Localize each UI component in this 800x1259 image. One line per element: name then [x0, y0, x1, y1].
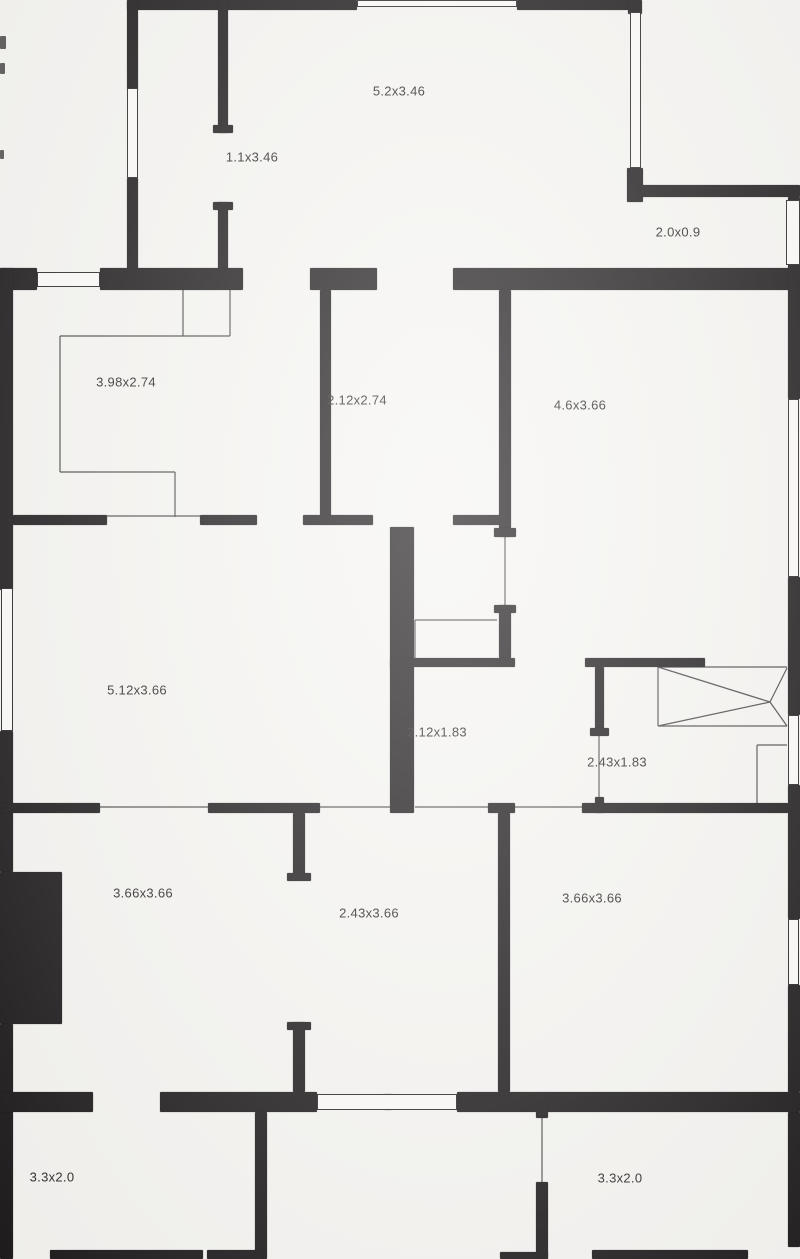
wall-segment	[127, 0, 357, 10]
wall-segment	[100, 268, 243, 290]
annotation-line	[658, 667, 770, 702]
room-dimension-label: 4.6x3.66	[554, 398, 606, 413]
window-marker	[1, 588, 13, 731]
room-dimension-label: 3.98x2.74	[96, 375, 156, 390]
wall-segment	[0, 803, 100, 813]
wall-segment	[592, 1250, 748, 1259]
wall-segment	[788, 985, 800, 1092]
wall-segment	[200, 515, 257, 525]
wall-segment	[788, 1112, 800, 1247]
room-dimension-label: 3.66x3.66	[562, 891, 622, 906]
wall-segment	[536, 1108, 548, 1118]
window-marker	[788, 715, 799, 785]
room-dimension-label: 2.43x1.83	[587, 755, 647, 770]
wall-segment	[293, 813, 305, 880]
wall-segment	[457, 1092, 800, 1112]
room-dimension-label: 2.12x2.74	[327, 393, 387, 408]
wall-segment	[499, 605, 511, 658]
wall-segment	[127, 0, 138, 90]
wall-segment	[0, 731, 13, 872]
room-dimension-label: 5.2x3.46	[373, 84, 425, 99]
wall-segment	[390, 658, 515, 667]
wall-segment	[0, 1024, 13, 1259]
wall-segment	[582, 803, 788, 813]
wall-segment	[498, 813, 510, 1092]
scan-artifact	[0, 150, 4, 159]
annotation-line	[770, 668, 787, 702]
wall-segment	[488, 803, 515, 813]
wall-segment	[0, 872, 62, 1024]
wall-segment	[255, 1112, 267, 1259]
annotation-line	[658, 702, 770, 726]
wall-segment	[310, 268, 377, 290]
wall-segment	[788, 785, 800, 919]
room-dimension-label: 1.1x3.46	[226, 150, 278, 165]
wall-segment	[590, 728, 609, 736]
wall-segment	[595, 667, 604, 735]
window-marker	[317, 1094, 457, 1110]
room-dimension-label: 3.66x3.66	[113, 886, 173, 901]
wall-segment	[585, 658, 705, 667]
wall-segment	[500, 1252, 548, 1259]
wall-segment	[390, 527, 414, 813]
wall-segment	[303, 515, 373, 525]
window-marker	[357, 0, 517, 7]
room-dimension-label: 2.12x1.83	[407, 725, 467, 740]
wall-segment	[218, 202, 228, 272]
window-marker	[127, 88, 138, 178]
room-dimension-label: 5.12x3.66	[107, 683, 167, 698]
window-marker	[630, 12, 641, 168]
wall-segment	[50, 1250, 203, 1259]
room-dimension-label: 3.3x2.0	[598, 1171, 643, 1186]
window-marker	[37, 272, 100, 287]
room-dimension-label: 2.0x0.9	[656, 225, 701, 240]
wall-segment	[213, 125, 233, 133]
wall-segment	[208, 803, 320, 813]
wall-segment	[453, 268, 795, 290]
wall-segment	[788, 577, 800, 715]
wall-segment	[160, 1092, 317, 1112]
wall-segment	[13, 515, 107, 525]
room-dimension-label: 3.3x2.0	[30, 1170, 75, 1185]
wall-segment	[453, 515, 500, 525]
scan-artifact	[0, 36, 6, 49]
window-marker	[786, 200, 800, 265]
floor-plan-canvas: 5.2x3.461.1x3.462.0x0.93.98x2.742.12x2.7…	[0, 0, 800, 1259]
annotation-line	[770, 702, 787, 726]
wall-segment	[287, 873, 311, 881]
room-dimension-label: 2.43x3.66	[339, 906, 399, 921]
wall-segment	[207, 1250, 263, 1259]
window-marker	[788, 919, 799, 985]
wall-segment	[637, 185, 800, 197]
scan-artifact	[0, 63, 5, 74]
wall-segment	[0, 268, 13, 590]
wall-segment	[536, 1182, 548, 1259]
wall-segment	[517, 0, 635, 10]
wall-segment	[494, 528, 516, 537]
wall-segment	[0, 1092, 93, 1112]
window-marker	[788, 399, 799, 577]
wall-segment	[499, 290, 511, 537]
wall-segment	[127, 178, 138, 272]
wall-segment	[293, 1022, 305, 1092]
wall-segment	[218, 0, 228, 133]
